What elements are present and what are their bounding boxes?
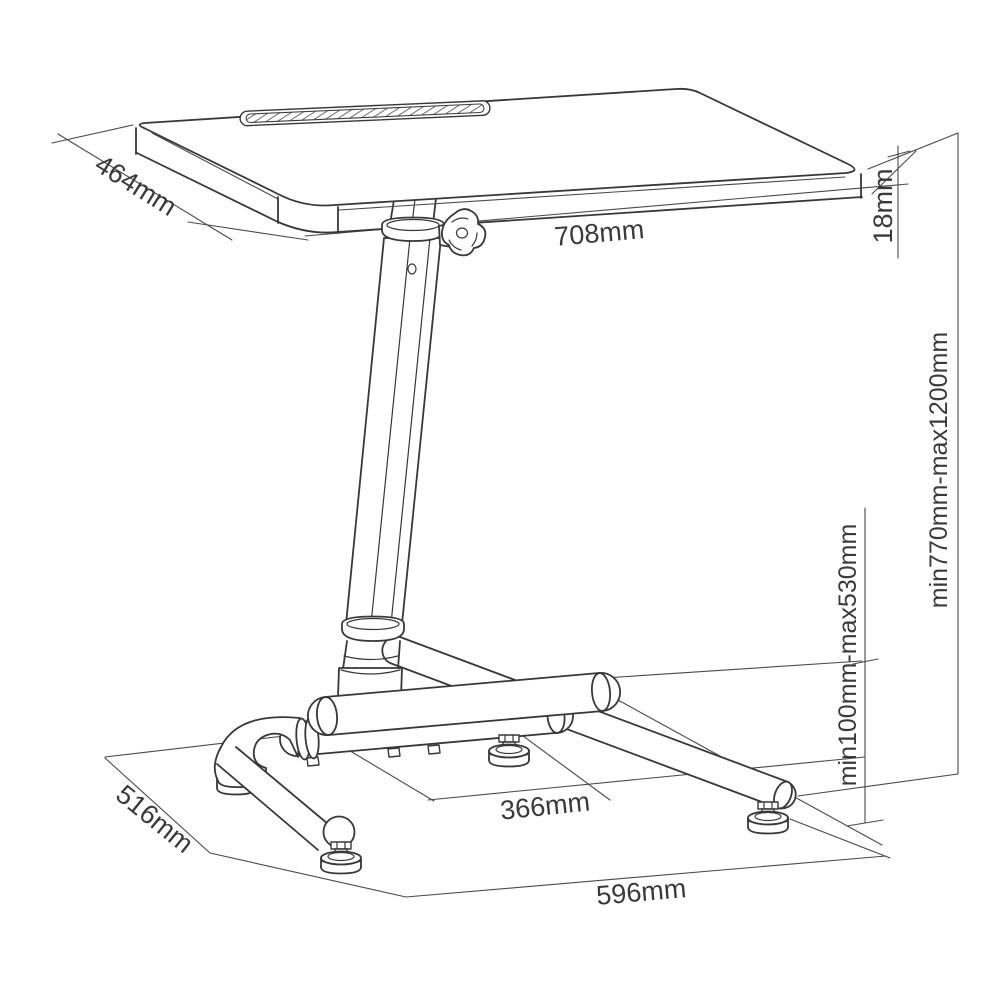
dim-596-ext-right: [790, 819, 890, 858]
tabletop: [136, 89, 862, 233]
label-base-inner-span: 366mm: [499, 786, 592, 825]
dim-464-ext-bottom: [188, 222, 308, 240]
beam-tab-1: [388, 748, 400, 757]
label-overall-height-range: min770mm-max1200mm: [925, 332, 953, 608]
front-leveling-foot: [321, 842, 361, 874]
clamp-knob: [439, 209, 485, 255]
label-desktop-width: 708mm: [553, 214, 645, 252]
column-outer-tube: [346, 238, 441, 624]
dimension-labels: 464mm 708mm 18mm min770mm-max1200mm min1…: [90, 149, 953, 911]
label-base-width: 596mm: [595, 873, 687, 911]
column-bottom-collar: [342, 617, 404, 642]
label-desktop-thickness: 18mm: [868, 168, 898, 243]
dim-footrest-ext-top: [604, 661, 862, 678]
dim-366-line: [428, 757, 865, 800]
label-desktop-depth: 464mm: [90, 149, 182, 222]
dim-height-floor-ext: [798, 774, 958, 796]
clamp-collar: [382, 218, 444, 242]
dim-464-ext-top: [52, 125, 133, 143]
dim-18-ext-a: [868, 133, 958, 169]
dimension-lines-under: [52, 125, 958, 897]
knob-body: [442, 209, 485, 255]
floor-corner-line: [210, 853, 406, 897]
beam-tab-2: [428, 745, 440, 754]
desk-structure: [136, 89, 862, 874]
tabletop-top-face: [140, 89, 855, 206]
center-leveling-foot: [489, 735, 529, 767]
dimension-drawing-page: 464mm 708mm 18mm min770mm-max1200mm min1…: [0, 0, 1000, 1000]
label-footrest-height-range: min100mm-max530mm: [834, 524, 862, 787]
desk-dimension-diagram: 464mm 708mm 18mm min770mm-max1200mm min1…: [0, 0, 1000, 1000]
label-base-depth: 516mm: [110, 779, 199, 859]
